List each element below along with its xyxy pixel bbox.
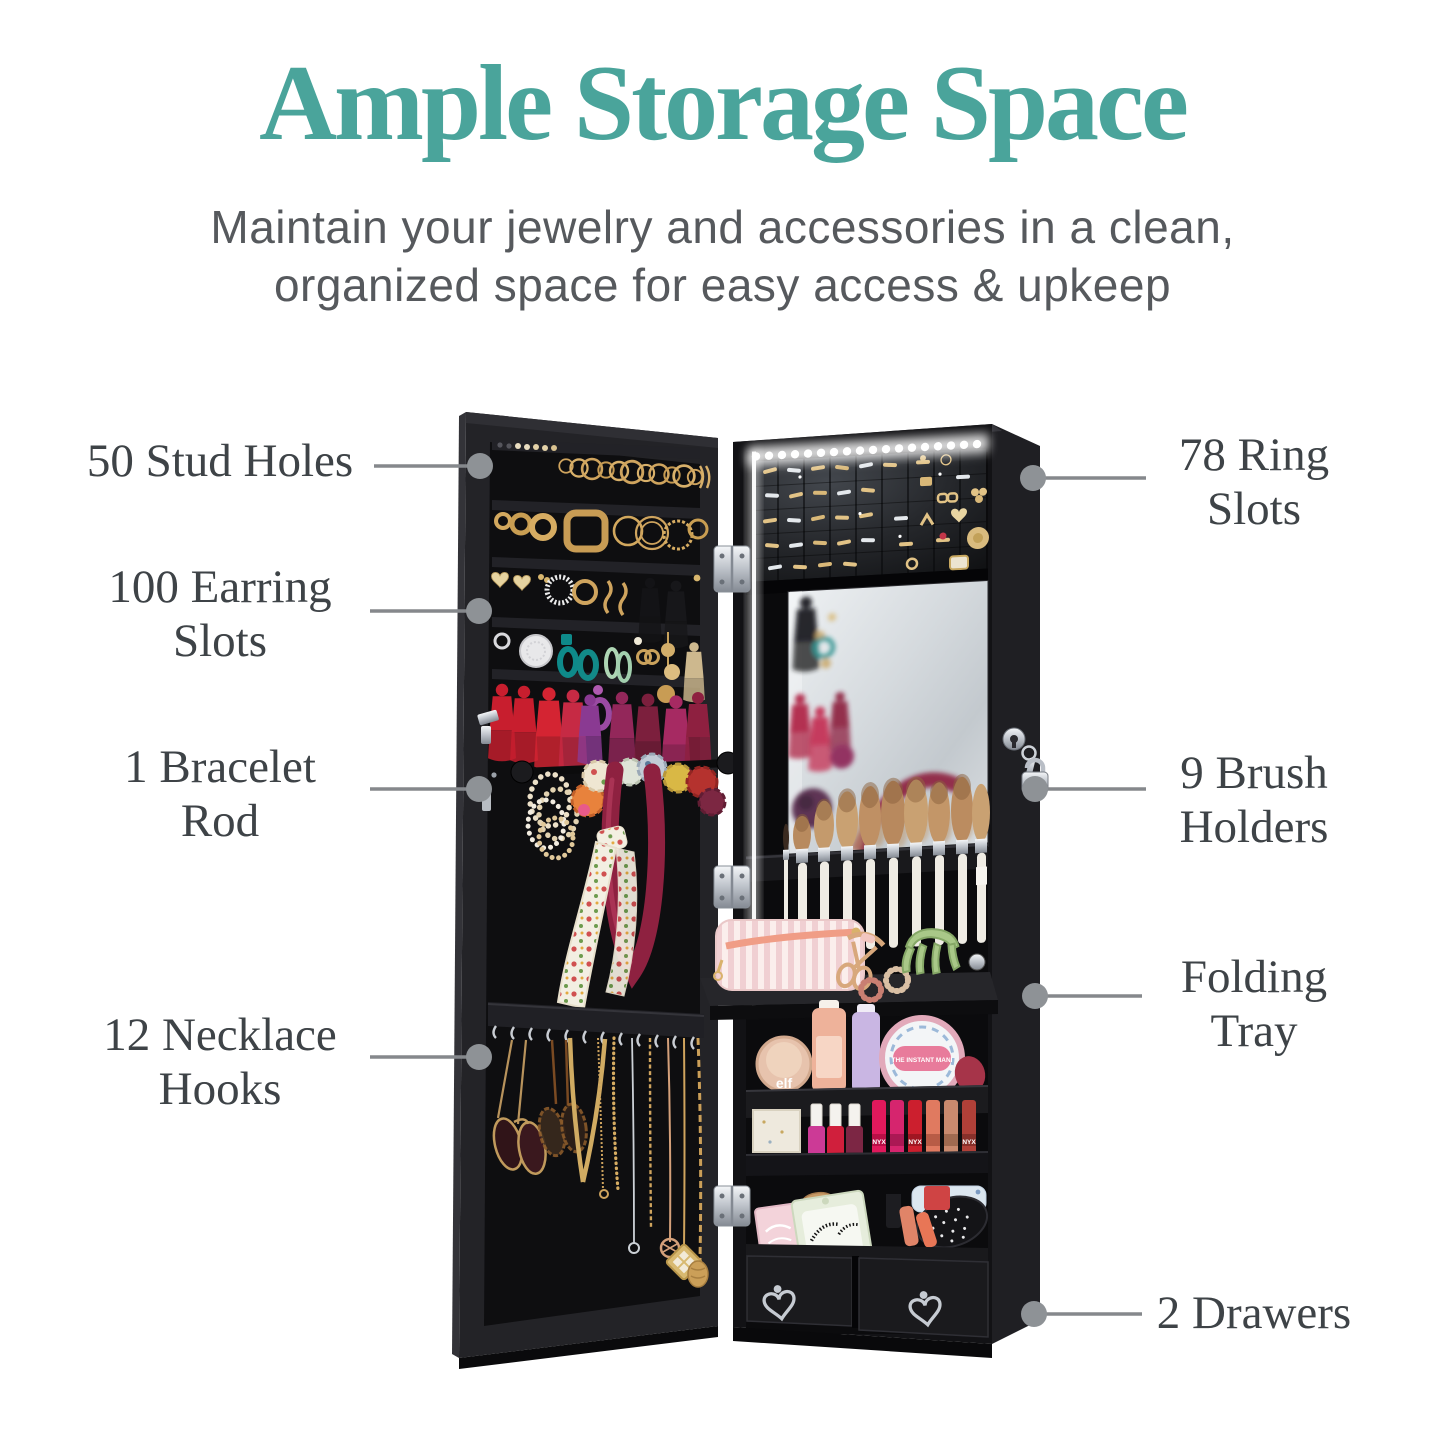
keyhole-icon[interactable] [1003, 728, 1025, 750]
callout-brush-holders: 9 BrushHolders [1062, 746, 1445, 854]
mani-tin-label: THE INSTANT MANI [892, 1057, 953, 1064]
drawer-left[interactable] [747, 1256, 852, 1326]
callout-necklace-hooks: 12 NecklaceHooks [28, 1008, 412, 1116]
hinge-icon [714, 546, 750, 592]
callout-bracelet-rod: 1 BraceletRod [28, 740, 412, 848]
infographic-page: Ample Storage Space Maintain your jewelr… [0, 0, 1445, 1445]
cabinet-left-door [452, 412, 739, 1369]
callout-drawers: 2 Drawers [1062, 1286, 1445, 1340]
callout-earring-slots: 100 EarringSlots [28, 560, 412, 668]
blush-compact-label: elf [776, 1075, 793, 1091]
hinge-icon [714, 1186, 750, 1226]
cabinet-side-face [992, 424, 1040, 1344]
callout-folding-tray: FoldingTray [1062, 950, 1445, 1058]
nyx-label: NYX [962, 1139, 976, 1146]
cosmetic-pouch [714, 920, 864, 990]
cabinet-illustration: elf THE INSTANT MANI [0, 0, 1445, 1445]
cabinet-right-panel: elf THE INSTANT MANI [700, 424, 1048, 1358]
hinge-icon [714, 866, 750, 908]
magnet-knob [969, 954, 985, 970]
nyx-label: NYX [872, 1139, 886, 1146]
callout-ring-slots: 78 RingSlots [1062, 428, 1445, 536]
nyx-label: NYX [908, 1139, 922, 1146]
callout-stud-holes: 50 Stud Holes [28, 434, 412, 488]
drawer-right[interactable] [859, 1258, 988, 1337]
